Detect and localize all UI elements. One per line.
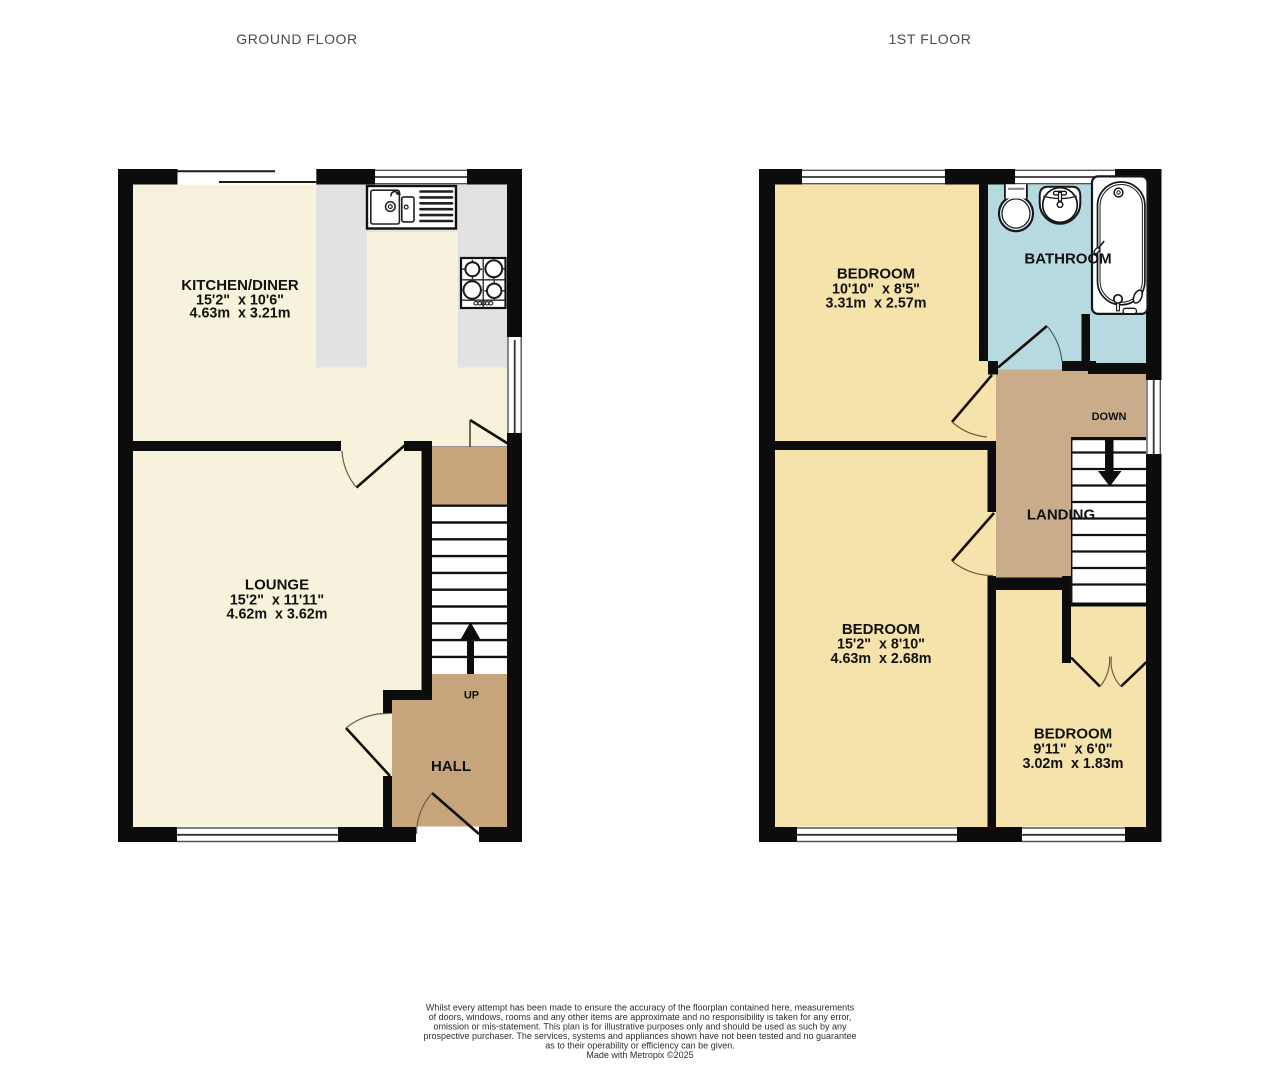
svg-text:BEDROOM: BEDROOM: [837, 266, 915, 283]
svg-text:Whilst every attempt has been: Whilst every attempt has been made to en…: [426, 1003, 855, 1013]
svg-text:of doors, windows, rooms and a: of doors, windows, rooms and any other i…: [429, 1012, 852, 1022]
svg-text:4.63m x 2.68m: 4.63m x 2.68m: [831, 651, 932, 667]
svg-text:prospective purchaser. The ser: prospective purchaser. The services, sys…: [423, 1031, 856, 1041]
svg-text:omission or mis-statement. Thi: omission or mis-statement. This plan is …: [433, 1022, 847, 1032]
svg-text:4.62m x 3.62m: 4.62m x 3.62m: [227, 607, 328, 623]
svg-text:1ST FLOOR: 1ST FLOOR: [889, 31, 972, 47]
svg-text:Made with Metropix ©2025: Made with Metropix ©2025: [586, 1050, 693, 1060]
svg-text:as to their operability or eff: as to their operability or efficiency ca…: [545, 1041, 734, 1051]
svg-text:4.63m x 3.21m: 4.63m x 3.21m: [190, 306, 291, 322]
svg-text:LANDING: LANDING: [1027, 507, 1095, 524]
svg-text:HALL: HALL: [431, 758, 471, 775]
svg-text:LOUNGE: LOUNGE: [245, 577, 309, 594]
svg-text:BEDROOM: BEDROOM: [1034, 726, 1112, 743]
svg-text:BEDROOM: BEDROOM: [842, 621, 920, 638]
svg-text:KITCHEN/DINER: KITCHEN/DINER: [181, 277, 299, 294]
svg-text:DOWN: DOWN: [1092, 411, 1127, 423]
svg-text:3.31m x 2.57m: 3.31m x 2.57m: [826, 296, 927, 312]
svg-text:BATHROOM: BATHROOM: [1024, 251, 1111, 268]
svg-text:UP: UP: [464, 690, 479, 702]
svg-text:3.02m x 1.83m: 3.02m x 1.83m: [1023, 756, 1124, 772]
svg-text:GROUND FLOOR: GROUND FLOOR: [236, 31, 358, 47]
